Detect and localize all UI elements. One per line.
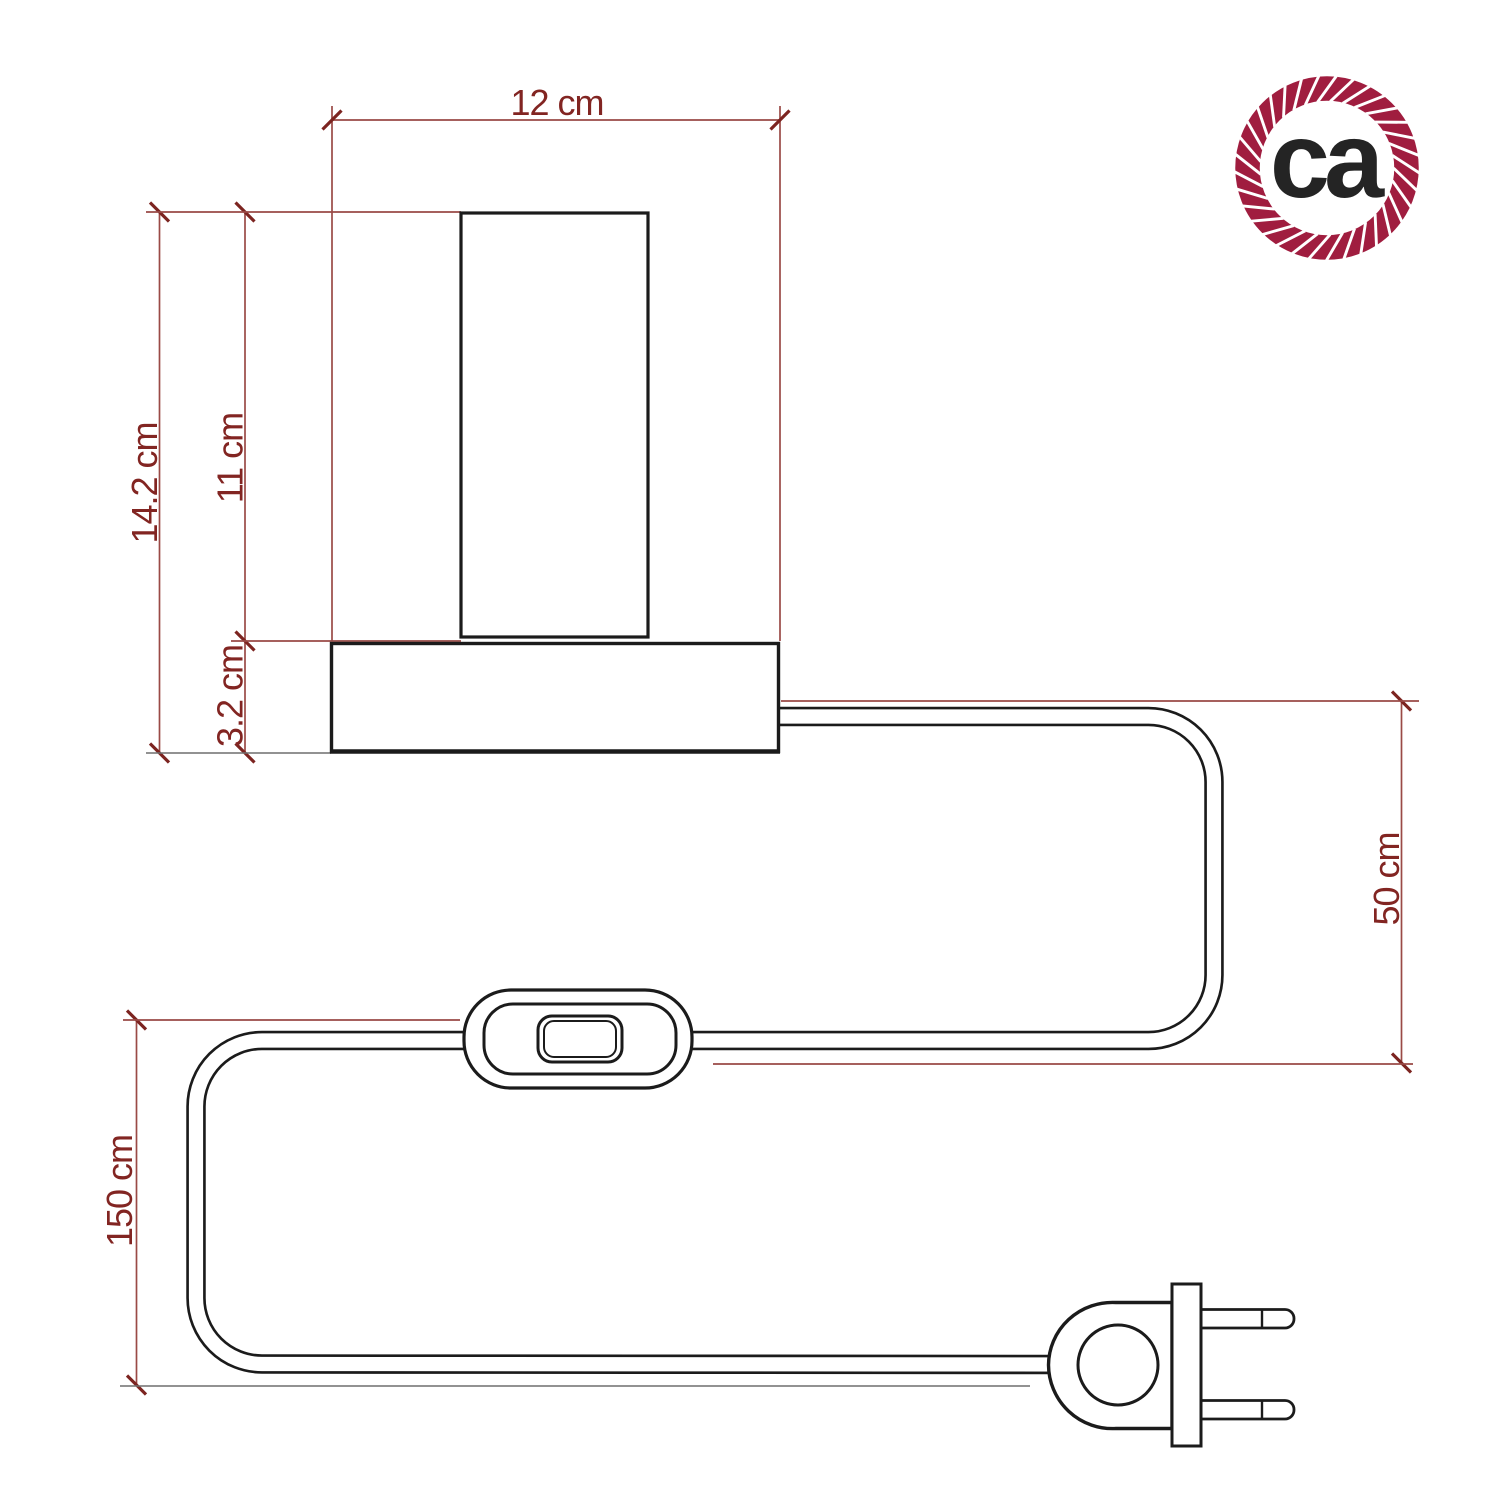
- svg-text:12 cm: 12 cm: [510, 82, 603, 123]
- svg-text:50 cm: 50 cm: [1366, 832, 1407, 925]
- svg-text:150 cm: 150 cm: [99, 1135, 140, 1247]
- svg-text:3.2 cm: 3.2 cm: [210, 645, 251, 747]
- svg-text:14.2 cm: 14.2 cm: [124, 422, 165, 543]
- svg-text:ca: ca: [1270, 99, 1385, 220]
- svg-text:11 cm: 11 cm: [210, 413, 251, 503]
